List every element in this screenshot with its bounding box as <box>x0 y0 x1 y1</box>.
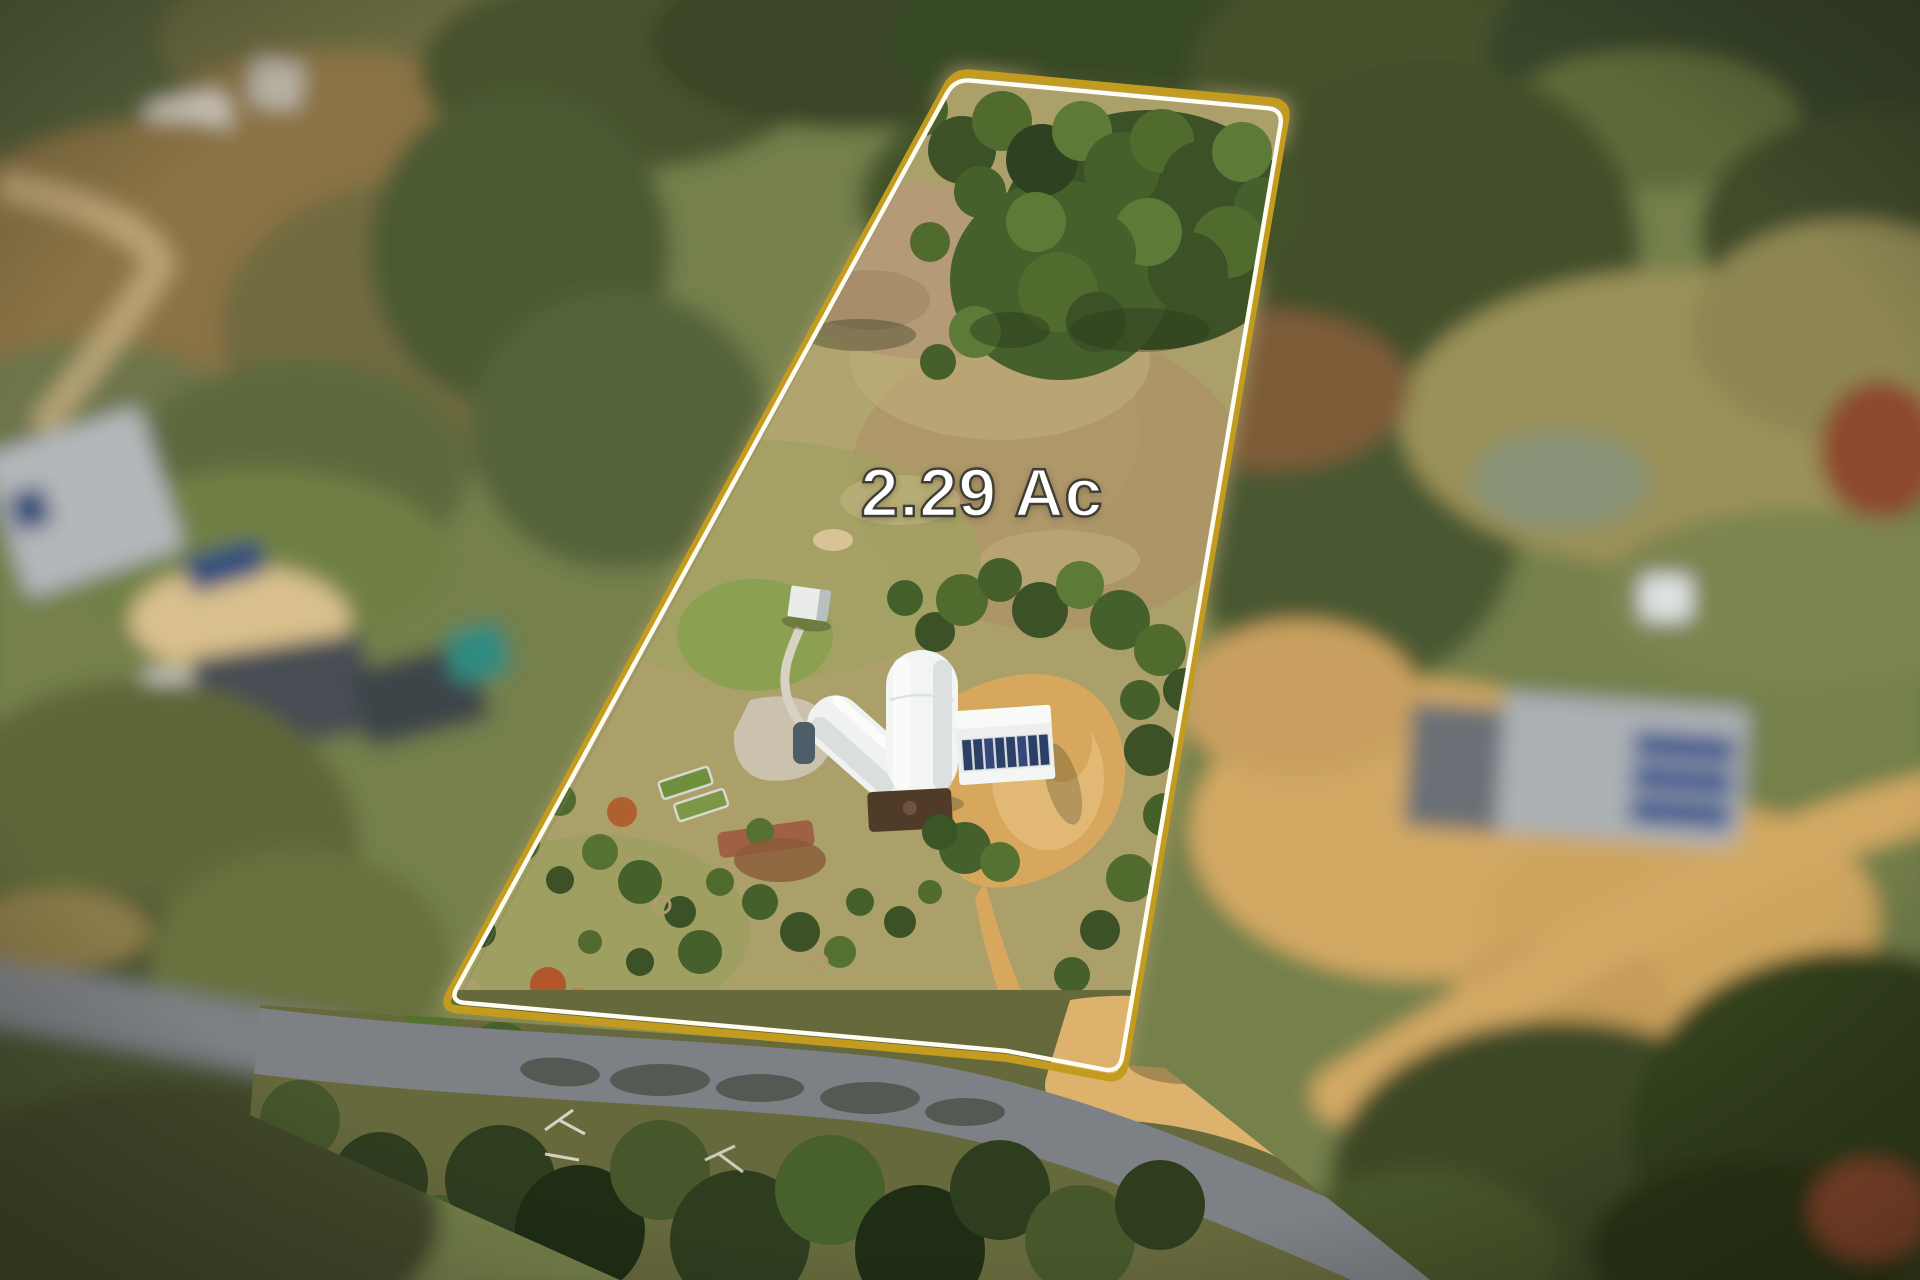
area-label: 2.29 Ac <box>861 454 1104 532</box>
aerial-scene <box>0 0 1920 1280</box>
vignette <box>0 0 1920 1280</box>
aerial-photo: 2.29 Ac <box>0 0 1920 1280</box>
